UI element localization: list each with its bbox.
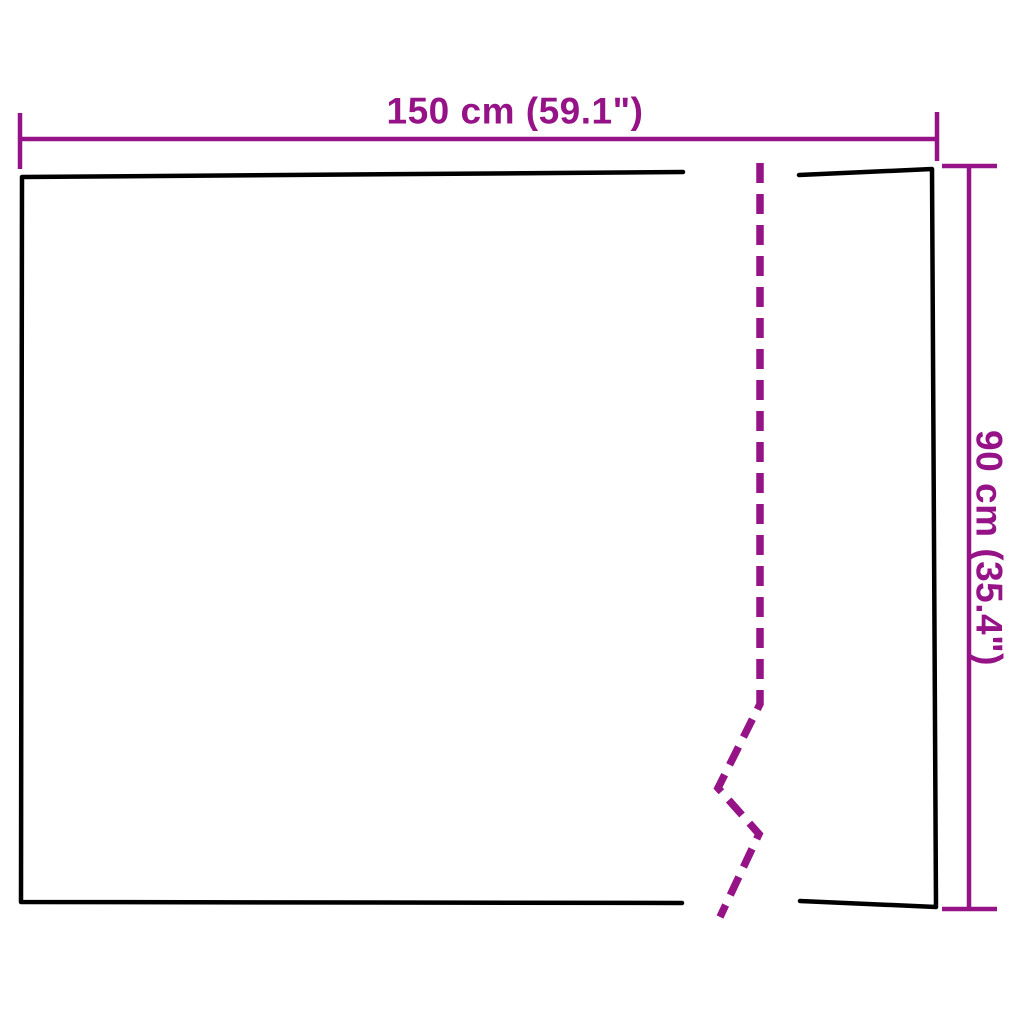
diagram-canvas	[0, 0, 1024, 1024]
product-outline-left	[21, 172, 683, 903]
fold-dashed-line	[718, 163, 760, 917]
product-dimension-diagram: 150 cm (59.1") 90 cm (35.4")	[0, 0, 1024, 1024]
width-dimension-label: 150 cm (59.1")	[387, 93, 644, 130]
height-dimension-label: 90 cm (35.4")	[971, 430, 1008, 666]
product-outline-right	[799, 169, 936, 907]
